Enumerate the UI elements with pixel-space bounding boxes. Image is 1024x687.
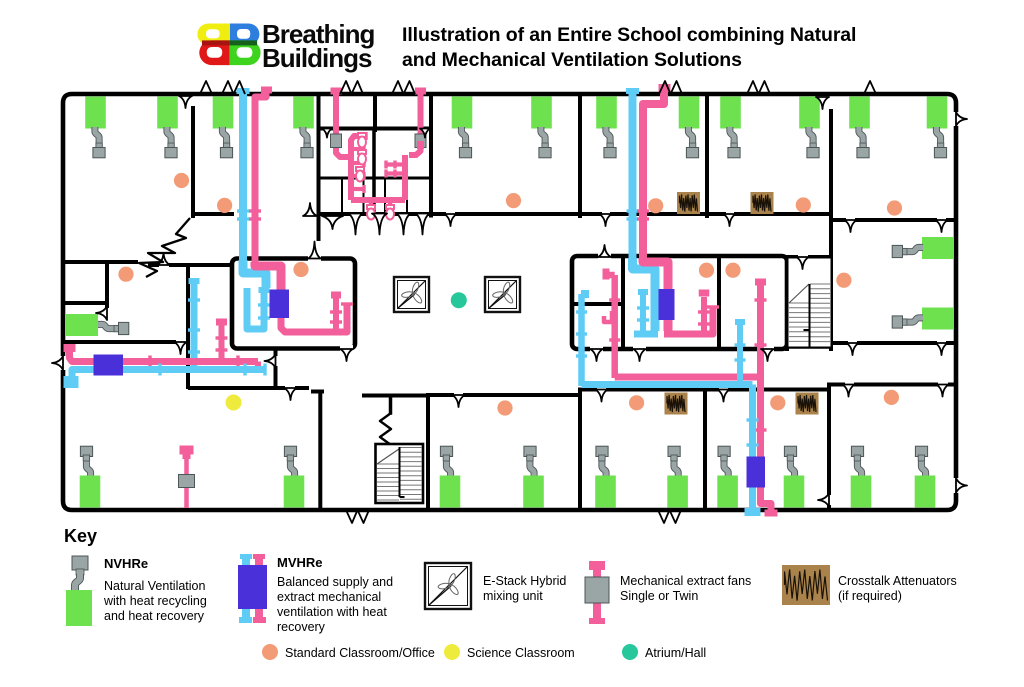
svg-text:Buildings: Buildings — [262, 43, 372, 73]
svg-text:Science Classroom: Science Classroom — [467, 646, 575, 660]
svg-text:ventilation with heat: ventilation with heat — [277, 605, 387, 619]
svg-text:Mechanical extract fans: Mechanical extract fans — [620, 574, 751, 588]
svg-text:mixing unit: mixing unit — [483, 589, 543, 603]
svg-text:extract mechanical: extract mechanical — [277, 590, 381, 604]
svg-text:MVHRe: MVHRe — [277, 555, 323, 570]
svg-text:(if required): (if required) — [838, 589, 902, 603]
svg-text:Single or Twin: Single or Twin — [620, 589, 698, 603]
svg-text:Crosstalk Attenuators: Crosstalk Attenuators — [838, 574, 957, 588]
svg-text:recovery: recovery — [277, 620, 326, 634]
svg-text:E-Stack Hybrid: E-Stack Hybrid — [483, 574, 566, 588]
svg-text:and heat recovery: and heat recovery — [104, 609, 205, 623]
svg-text:Balanced supply and: Balanced supply and — [277, 575, 393, 589]
svg-text:Illustration of an Entire Scho: Illustration of an Entire School combini… — [402, 24, 856, 46]
svg-text:Standard Classroom/Office: Standard Classroom/Office — [285, 646, 435, 660]
svg-text:with heat recycling: with heat recycling — [103, 594, 207, 608]
svg-text:Natural Ventilation: Natural Ventilation — [104, 579, 206, 593]
svg-text:NVHRe: NVHRe — [104, 556, 148, 571]
svg-text:and Mechanical Ventilation Sol: and Mechanical Ventilation Solutions — [402, 49, 742, 71]
svg-text:Atrium/Hall: Atrium/Hall — [645, 646, 706, 660]
svg-text:Key: Key — [64, 526, 97, 546]
